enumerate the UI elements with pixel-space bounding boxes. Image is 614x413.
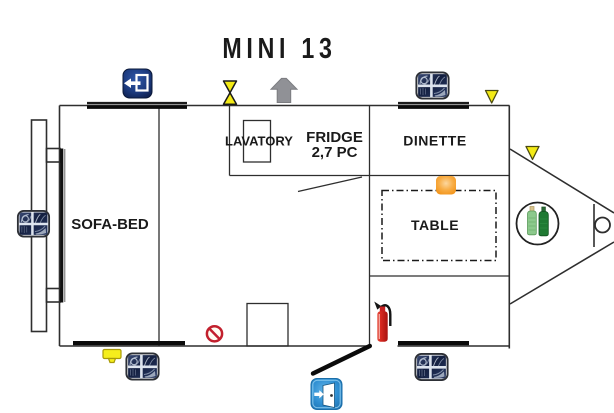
svg-text:TABLE: TABLE (411, 217, 459, 233)
svg-text:DINETTE: DINETTE (403, 133, 466, 149)
svg-text:MINI 13: MINI 13 (222, 31, 336, 64)
svg-text:2,7 PC: 2,7 PC (312, 144, 358, 161)
svg-text:SOFA-BED: SOFA-BED (71, 216, 149, 233)
svg-text:LAVATORY: LAVATORY (225, 134, 293, 149)
